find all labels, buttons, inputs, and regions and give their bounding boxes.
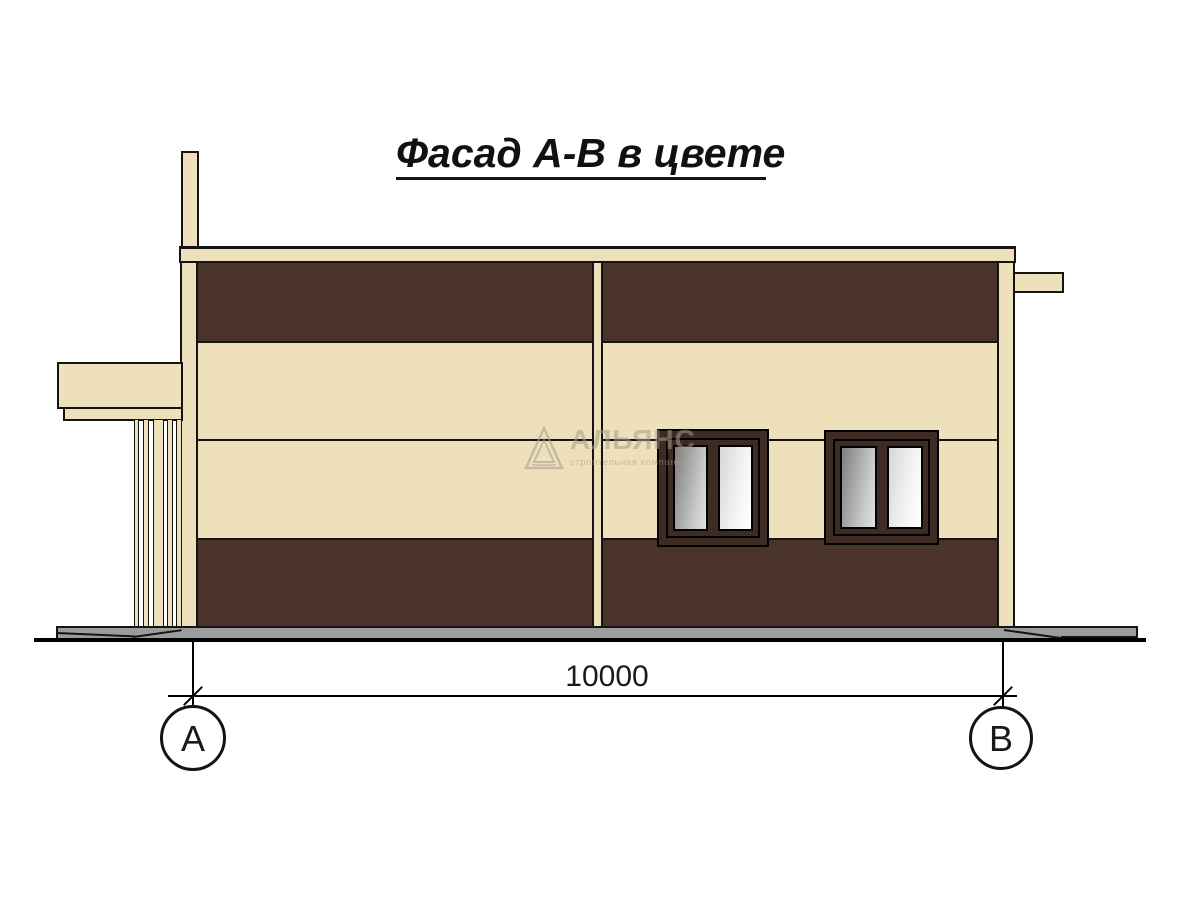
canopy-slat <box>176 419 182 629</box>
right-corner-post <box>997 261 1015 629</box>
axis-marker-a: А <box>160 705 226 771</box>
canopy-fascia-lip <box>63 407 183 421</box>
wall-center-joint <box>592 261 603 629</box>
chimney-post <box>181 151 199 251</box>
canopy-slat <box>143 419 149 629</box>
canopy-slat <box>167 419 173 629</box>
drawing-title: Фасад А-В в цвете <box>396 130 766 180</box>
axis-marker-b-label: В <box>989 718 1013 759</box>
left-corner-post <box>180 261 198 629</box>
ground-baseline <box>34 638 1146 642</box>
axis-marker-b: В <box>969 706 1033 770</box>
canopy-slat <box>134 419 139 629</box>
window-left <box>657 429 769 547</box>
right-side-beam <box>1013 272 1064 293</box>
window-right-glass-pane <box>887 446 924 529</box>
dimension-value: 10000 <box>507 660 707 694</box>
window-right-inner-frame <box>833 439 930 536</box>
window-right <box>824 430 939 545</box>
canopy-roof <box>57 362 183 409</box>
window-right-glass-pane <box>840 446 877 529</box>
window-left-glass-pane <box>673 445 708 531</box>
dimension-line <box>168 695 1017 697</box>
facade-drawing: 10000 А В Фасад А-В в цвете АЛЬЯНС строи… <box>0 0 1200 900</box>
axis-marker-a-label: А <box>181 718 205 759</box>
canopy-slat <box>153 419 164 629</box>
window-left-inner-frame <box>666 438 760 538</box>
roof-fascia <box>179 246 1016 263</box>
window-left-glass-pane <box>718 445 753 531</box>
